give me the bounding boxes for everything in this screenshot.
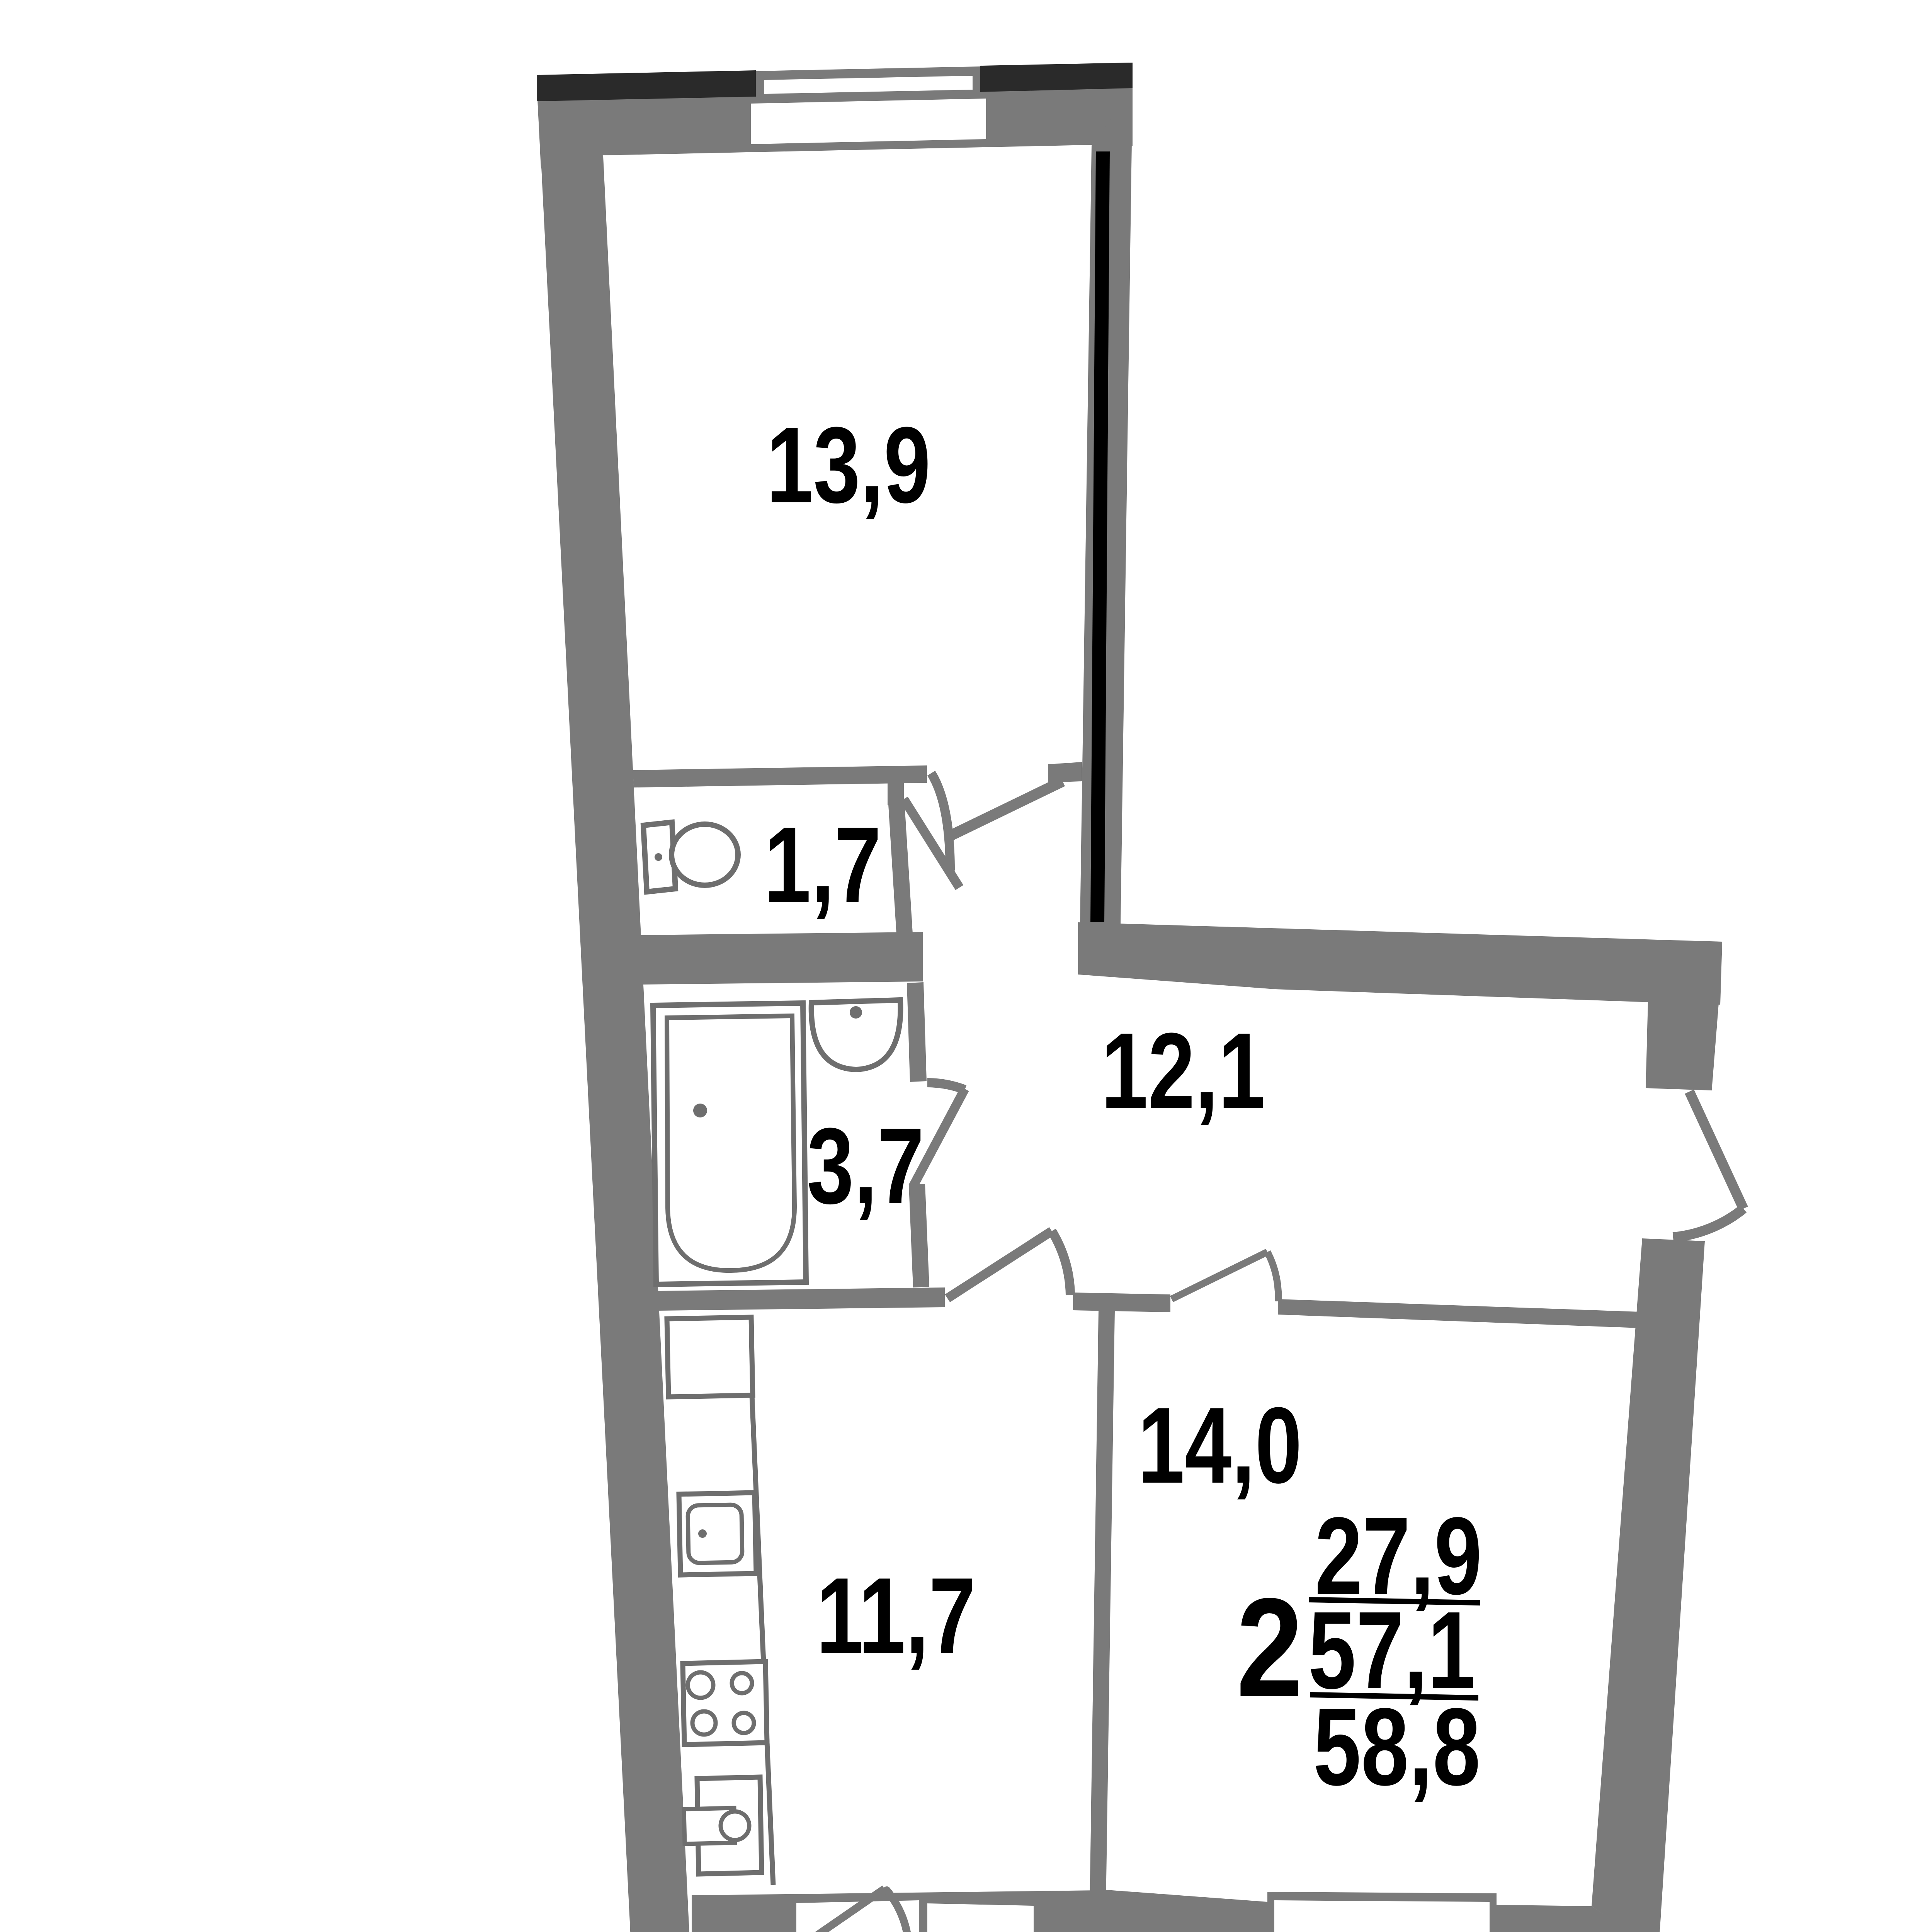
svg-text:3,7: 3,7 [807, 1106, 924, 1226]
svg-text:13,9: 13,9 [766, 405, 930, 526]
svg-text:11,7: 11,7 [816, 1556, 976, 1676]
svg-text:1,7: 1,7 [764, 805, 881, 925]
svg-text:2: 2 [1236, 1568, 1303, 1726]
svg-text:14,0: 14,0 [1138, 1385, 1302, 1506]
svg-text:12,1: 12,1 [1101, 1011, 1265, 1131]
svg-text:58,8: 58,8 [1313, 1686, 1481, 1809]
